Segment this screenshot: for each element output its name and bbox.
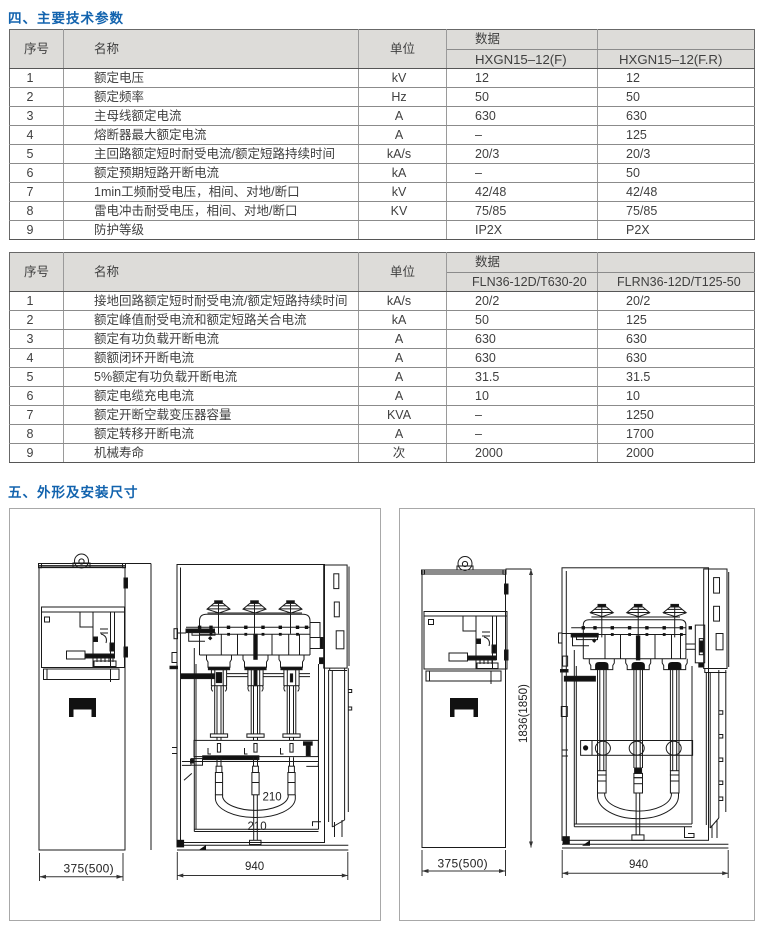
svg-text:375(500): 375(500)	[64, 862, 114, 876]
svg-text:940: 940	[245, 861, 264, 873]
svg-text:210: 210	[263, 792, 282, 804]
svg-text:1836(1850): 1836(1850)	[518, 684, 530, 743]
svg-text:375(500): 375(500)	[438, 857, 488, 871]
svg-text:210: 210	[248, 821, 267, 833]
svg-text:940: 940	[629, 859, 648, 871]
